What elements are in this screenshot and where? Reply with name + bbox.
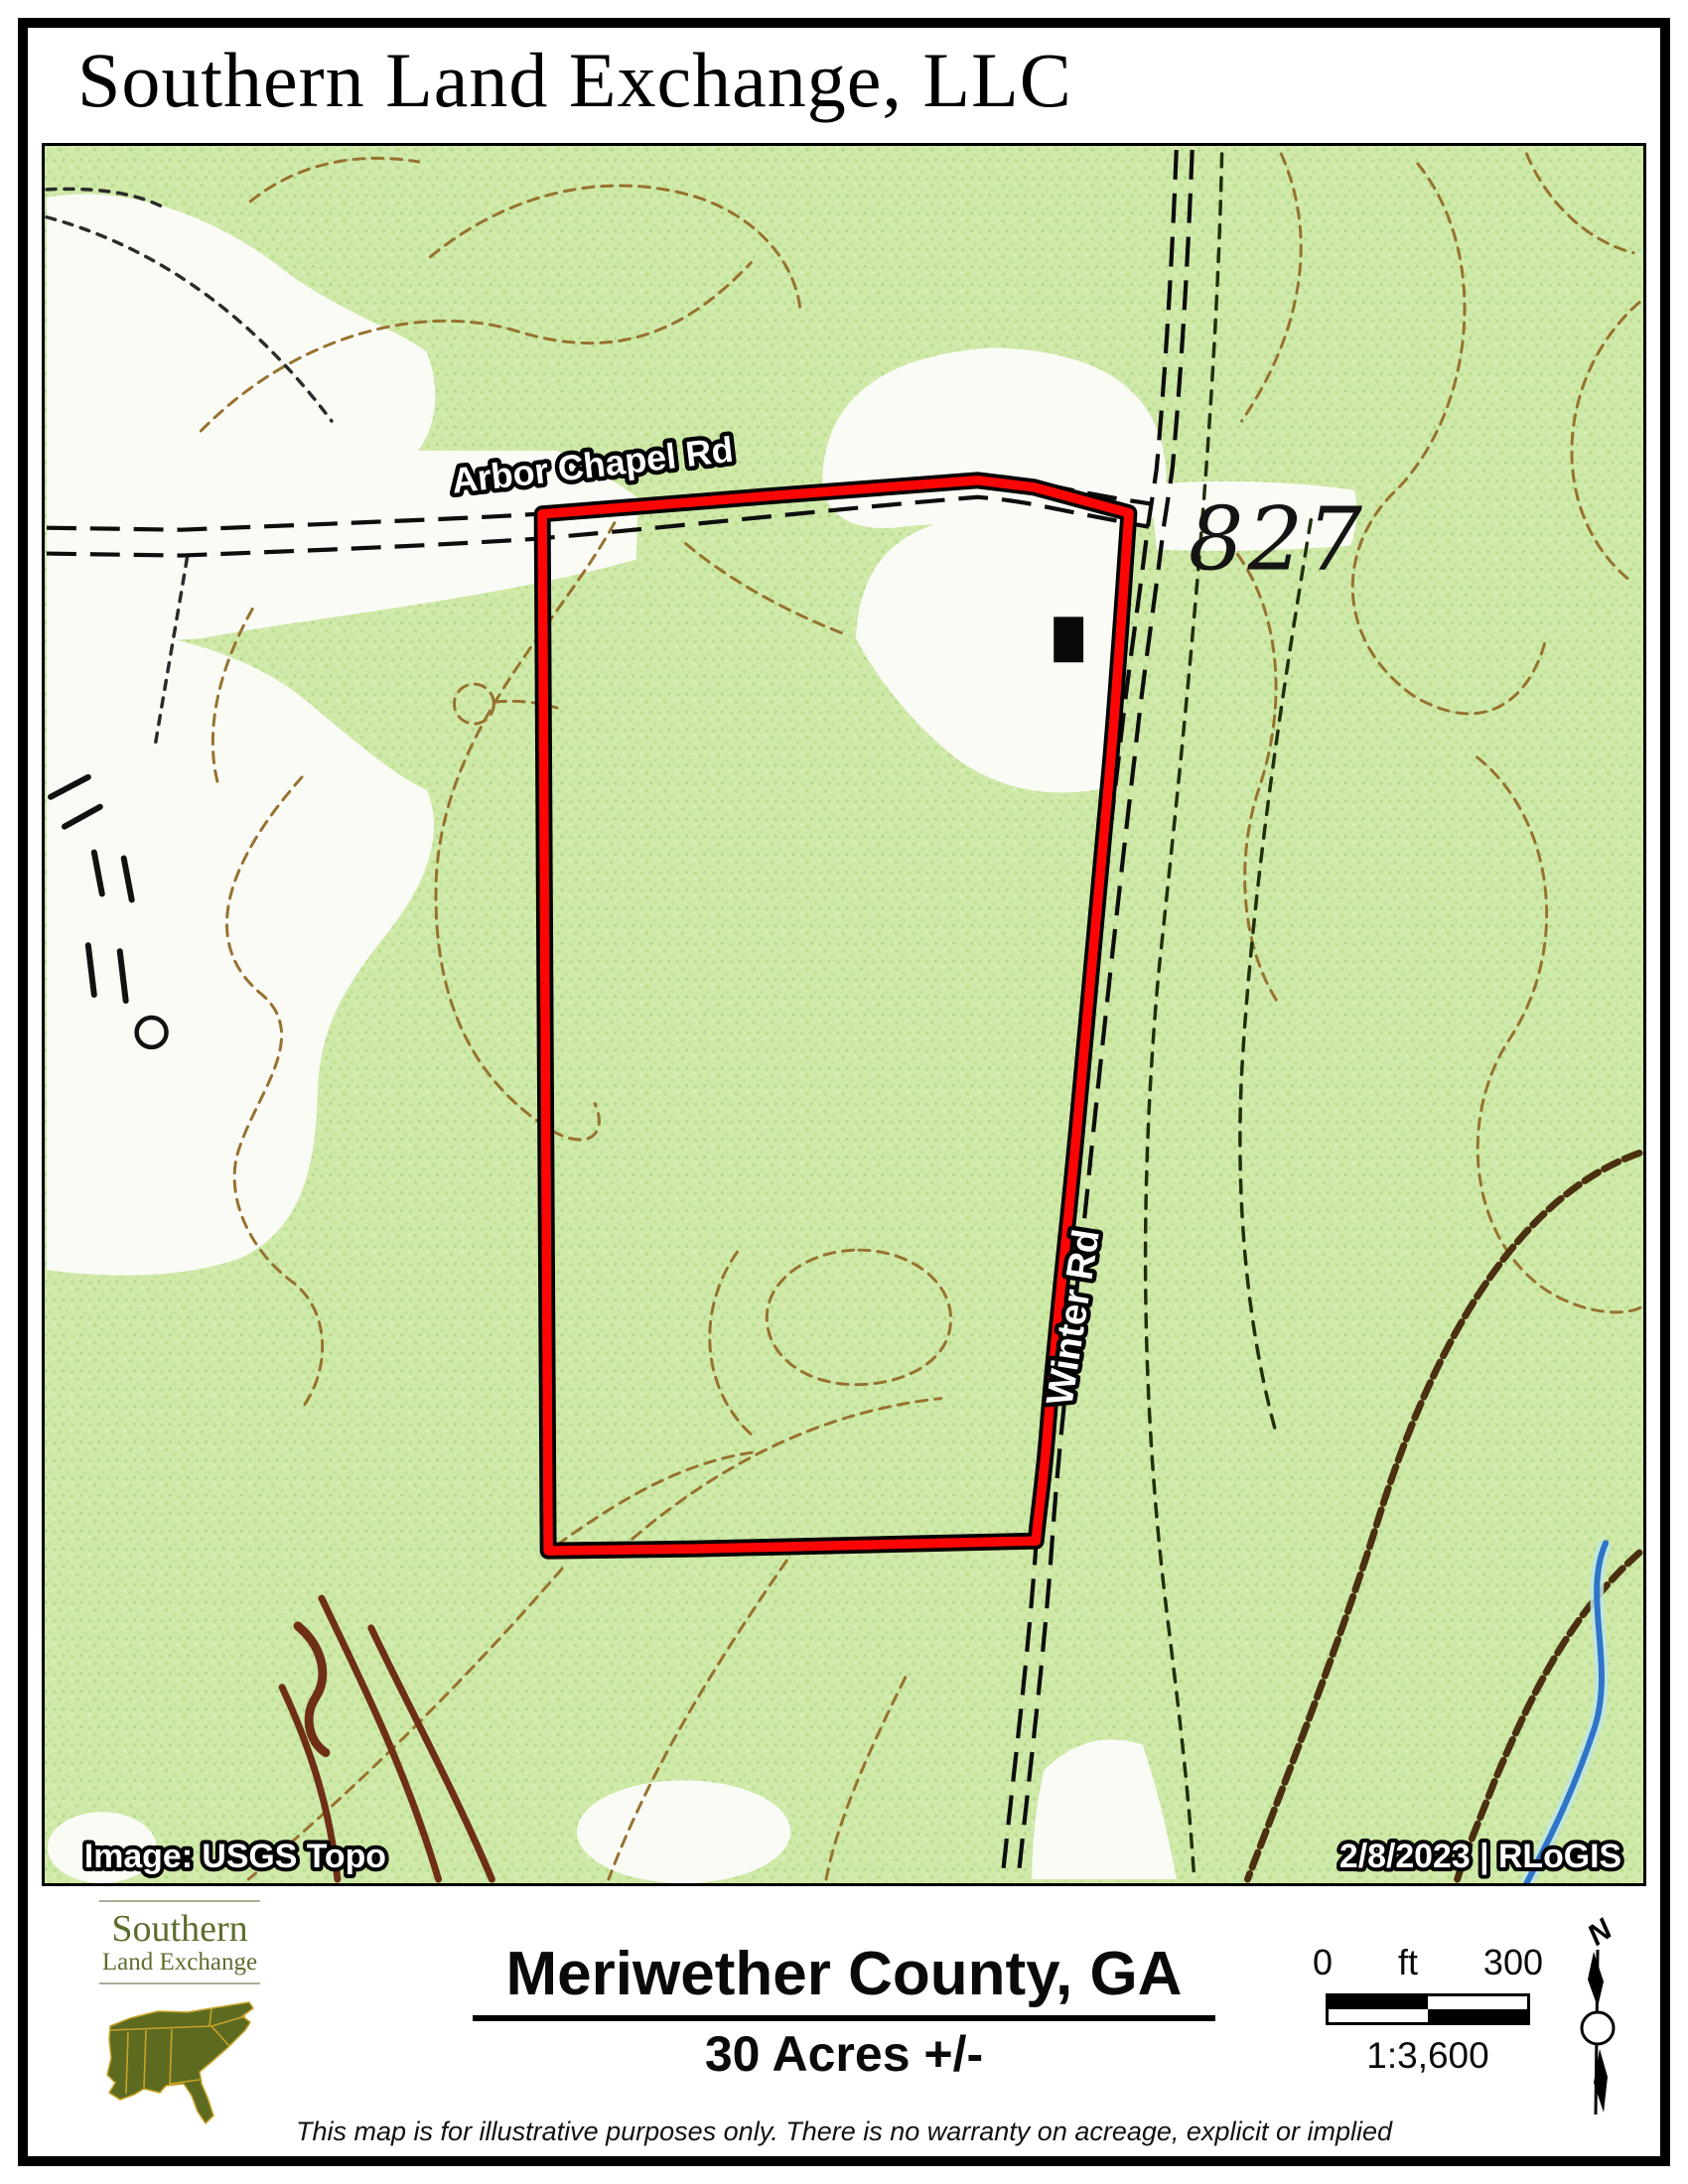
scale-zero-label: 0	[1313, 1942, 1333, 1983]
company-title: Southern Land Exchange, LLC	[77, 36, 1072, 125]
logo-text-southern: Southern	[97, 1910, 262, 1948]
logo-rule-bottom	[99, 1982, 260, 1984]
scale-unit-label: ft	[1398, 1942, 1418, 1983]
southeast-us-map-icon	[100, 1996, 259, 2127]
company-logo: Southern Land Exchange	[97, 1900, 262, 2132]
map-sheet: Southern Land Exchange, LLC	[0, 0, 1688, 2184]
north-arrow-upper-flag	[1588, 1952, 1604, 2007]
north-arrow-circle	[1582, 2012, 1614, 2044]
logo-text-land-exchange: Land Exchange	[97, 1950, 262, 1975]
map-title-block: Meriwether County, GA 30 Acres +/-	[407, 1944, 1281, 2079]
topo-map: Arbor Chapel Rd Winter Rd 827 Image: USG…	[42, 143, 1646, 1886]
scale-bar-graphic	[1326, 1993, 1530, 2025]
north-label: N	[1582, 1916, 1619, 1953]
scale-max-label: 300	[1483, 1942, 1543, 1983]
building	[1054, 616, 1083, 662]
scale-ratio: 1:3,600	[1309, 2035, 1547, 2077]
disclaimer-text: This map is for illustrative purposes on…	[0, 2116, 1688, 2147]
county-title: Meriwether County, GA	[473, 1944, 1216, 2021]
logo-rule-top	[99, 1900, 260, 1902]
acreage-label: 30 Acres +/-	[407, 2029, 1281, 2079]
date-credit: 2/8/2023 | RLoGIS	[1339, 1838, 1621, 1875]
spot-elevation-label: 827	[1189, 489, 1366, 591]
image-credit: Image: USGS Topo	[84, 1838, 386, 1875]
topo-map-svg: Arbor Chapel Rd Winter Rd 827 Image: USG…	[45, 146, 1643, 1883]
scale-bar: 0 ft 300 1:3,600	[1309, 1942, 1547, 2077]
north-arrow: N	[1567, 1916, 1630, 2144]
